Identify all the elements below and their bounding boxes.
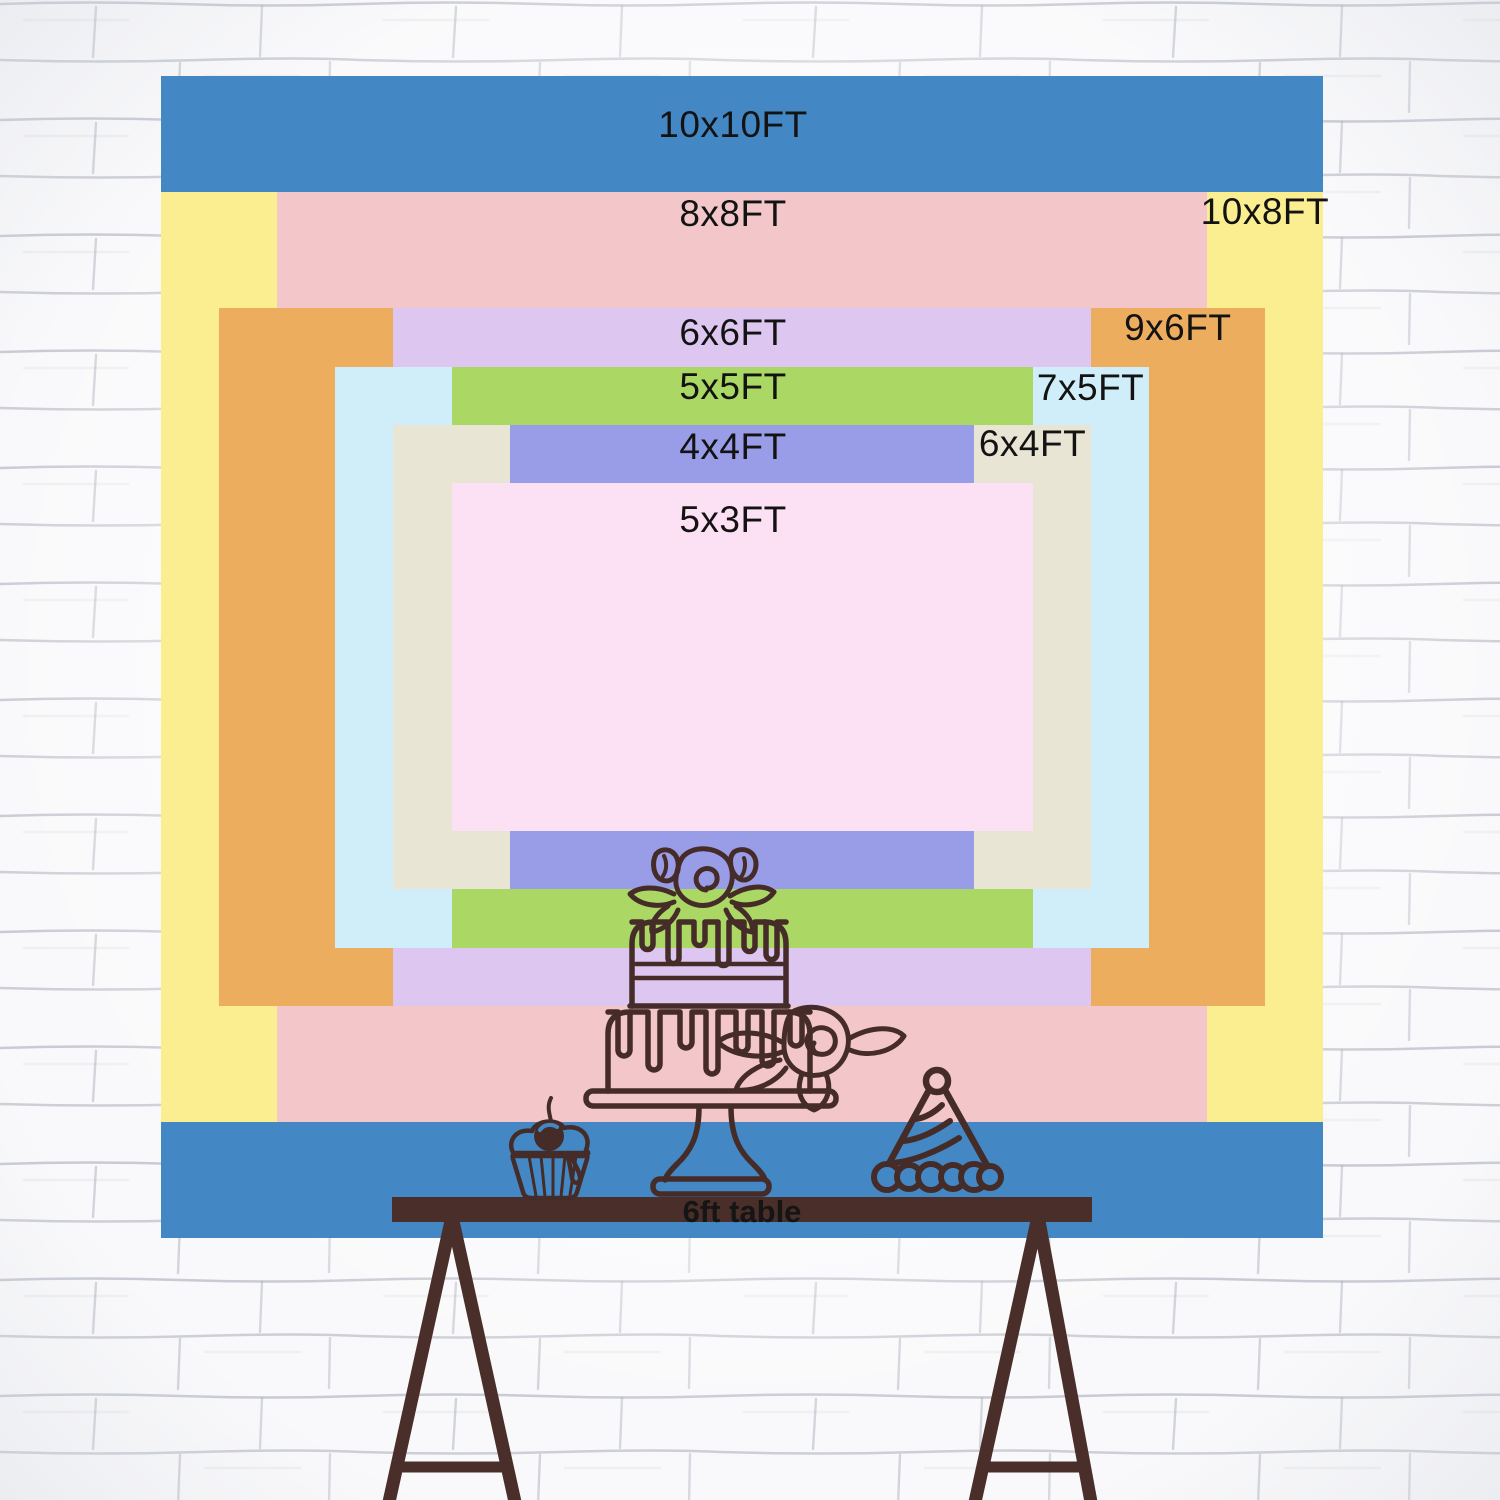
backdrop: 10x10FT10x8FT8x8FT9x6FT6x6FT7x5FT5x5FT6x…: [161, 76, 1323, 1238]
table-label: 6ft table: [683, 1196, 802, 1227]
label-7x5ft: 7x5FT: [1037, 369, 1144, 406]
label-5x5ft: 5x5FT: [679, 368, 786, 405]
label-5x3ft: 5x3FT: [679, 501, 786, 538]
label-10x8ft: 10x8FT: [1201, 193, 1329, 230]
label-8x8ft: 8x8FT: [679, 195, 786, 232]
label-10x10ft: 10x10FT: [658, 106, 808, 143]
label-6x4ft: 6x4FT: [979, 425, 1086, 462]
label-4x4ft: 4x4FT: [679, 428, 786, 465]
label-6x6ft: 6x6FT: [679, 314, 786, 351]
label-9x6ft: 9x6FT: [1124, 309, 1231, 346]
backdrop-size-chart: 10x10FT10x8FT8x8FT9x6FT6x6FT7x5FT5x5FT6x…: [0, 0, 1500, 1500]
